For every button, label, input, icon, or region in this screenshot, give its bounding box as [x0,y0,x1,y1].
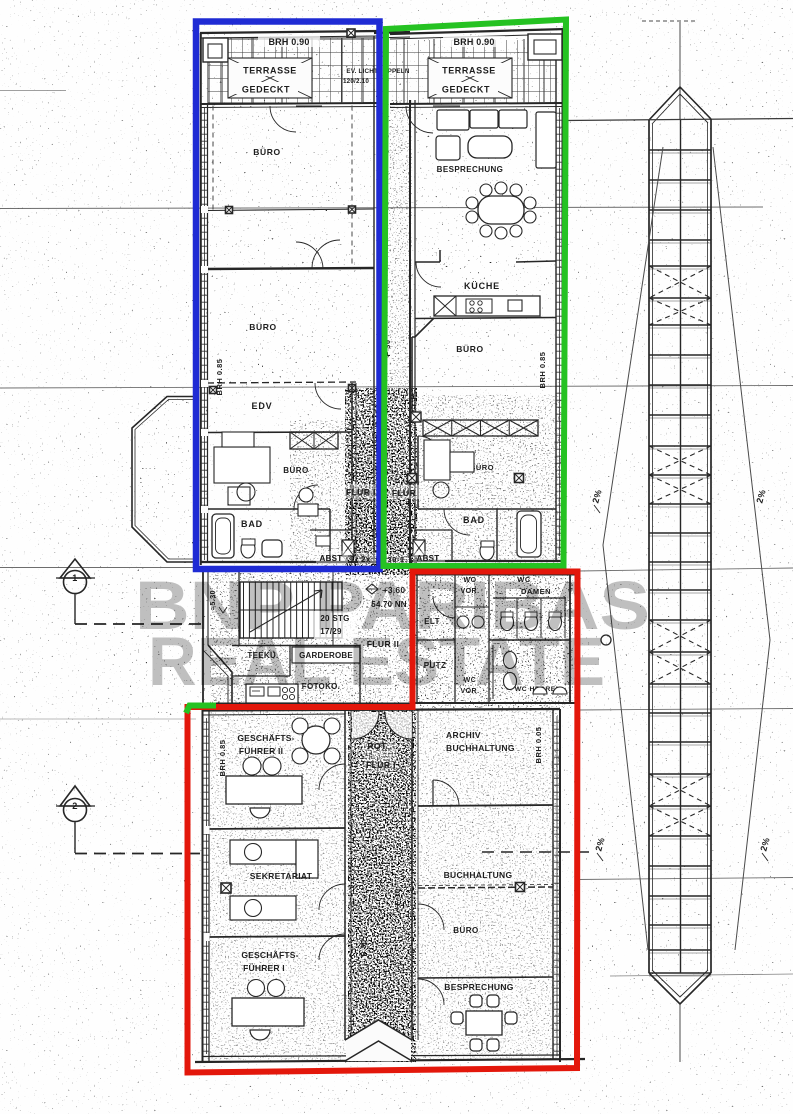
svg-text:FLUR I: FLUR I [346,487,376,497]
svg-text:ROT.: ROT. [368,741,389,751]
svg-text:BÜRO: BÜRO [456,344,483,354]
svg-text:TERRASSE: TERRASSE [442,66,496,76]
svg-text:FÜHRER I: FÜHRER I [243,963,285,973]
svg-text:FLUR: FLUR [392,488,416,498]
svg-text:BESPRECHUNG: BESPRECHUNG [437,165,504,174]
svg-text:BAD: BAD [241,519,263,529]
svg-text:BUCHHALTUNG: BUCHHALTUNG [446,743,515,753]
svg-text:GEDECKT: GEDECKT [242,85,290,95]
svg-text:120/2.10: 120/2.10 [343,78,369,85]
svg-text:BRH 0.85: BRH 0.85 [538,352,547,389]
svg-text:GESCHÄFTS-: GESCHÄFTS- [241,950,298,960]
svg-text:GEDECKT: GEDECKT [442,85,490,95]
svg-text:BRH 0.85: BRH 0.85 [218,740,227,777]
svg-text:ABST: ABST [320,554,343,563]
svg-text:TERRASSE: TERRASSE [243,66,297,76]
svg-text:BAD: BAD [463,515,485,525]
svg-text:BRH 0.90: BRH 0.90 [268,37,309,47]
svg-text:EDV: EDV [252,401,273,411]
svg-text:GESCHÄFTS-: GESCHÄFTS- [237,733,294,743]
svg-text:ABST: ABST [417,554,440,563]
svg-text:BRH 0.85: BRH 0.85 [215,359,224,396]
svg-text:SEKRETARIAT: SEKRETARIAT [250,871,313,881]
svg-text:KÜCHE: KÜCHE [464,281,500,291]
svg-text:2: 2 [72,801,78,811]
svg-text:ARCHIV: ARCHIV [446,730,481,740]
svg-text:BÜRO: BÜRO [249,322,276,332]
svg-text:REAL ESTATE: REAL ESTATE [148,623,605,700]
svg-text:1: 1 [72,573,78,583]
svg-text:BÜRO: BÜRO [283,466,309,475]
svg-text:BRH 0.05: BRH 0.05 [534,727,543,764]
svg-text:BÜRO: BÜRO [453,926,479,935]
svg-text:BUCHHALTUNG: BUCHHALTUNG [444,870,513,880]
svg-text:BRH 0.90: BRH 0.90 [453,37,494,47]
svg-text:2x: 2x [361,555,371,564]
svg-text:BÜRO: BÜRO [253,147,280,157]
svg-text:FÜHRER II: FÜHRER II [239,746,283,756]
svg-text:BESPRECHUNG: BESPRECHUNG [444,982,514,992]
svg-text:30-1: 30-1 [387,555,404,564]
svg-text:FLUR I: FLUR I [366,760,396,770]
